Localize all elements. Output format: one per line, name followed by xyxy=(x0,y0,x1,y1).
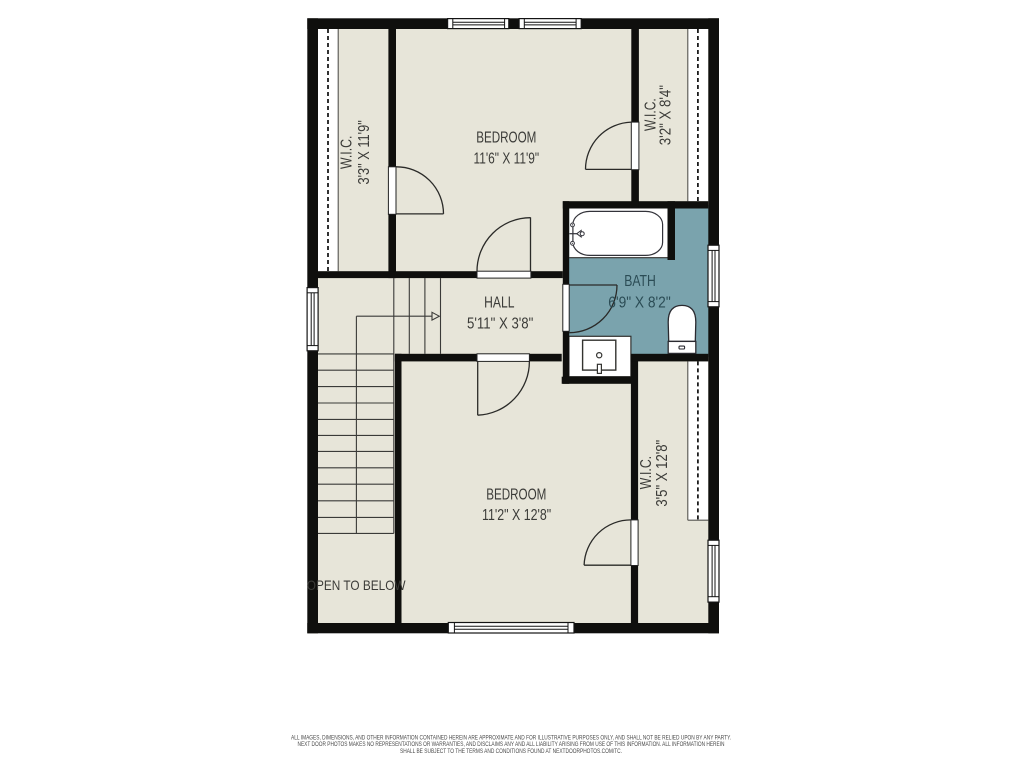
svg-text:OPEN TO BELOW: OPEN TO BELOW xyxy=(307,577,406,593)
svg-text:BEDROOM: BEDROOM xyxy=(486,486,546,503)
svg-text:BEDROOM: BEDROOM xyxy=(476,129,536,146)
svg-text:3'3" X 11'9": 3'3" X 11'9" xyxy=(356,120,373,184)
svg-text:W.I.C.: W.I.C. xyxy=(638,456,655,489)
svg-text:5'11" X 3'8": 5'11" X 3'8" xyxy=(467,316,533,333)
svg-text:3'5" X 12'8": 3'5" X 12'8" xyxy=(654,440,671,507)
svg-text:11'2" X 12'8": 11'2" X 12'8" xyxy=(482,507,551,524)
svg-text:SHALL BE SUBJECT TO THE TERMS: SHALL BE SUBJECT TO THE TERMS AND CONDIT… xyxy=(400,748,622,755)
svg-text:BATH: BATH xyxy=(624,273,656,290)
svg-text:W.I.C.: W.I.C. xyxy=(339,136,356,169)
svg-text:6'9" X 8'2": 6'9" X 8'2" xyxy=(608,294,670,311)
svg-text:11'6" X 11'9": 11'6" X 11'9" xyxy=(474,151,540,168)
svg-text:HALL: HALL xyxy=(484,295,514,312)
svg-text:3'2" X 8'4": 3'2" X 8'4" xyxy=(657,85,674,145)
